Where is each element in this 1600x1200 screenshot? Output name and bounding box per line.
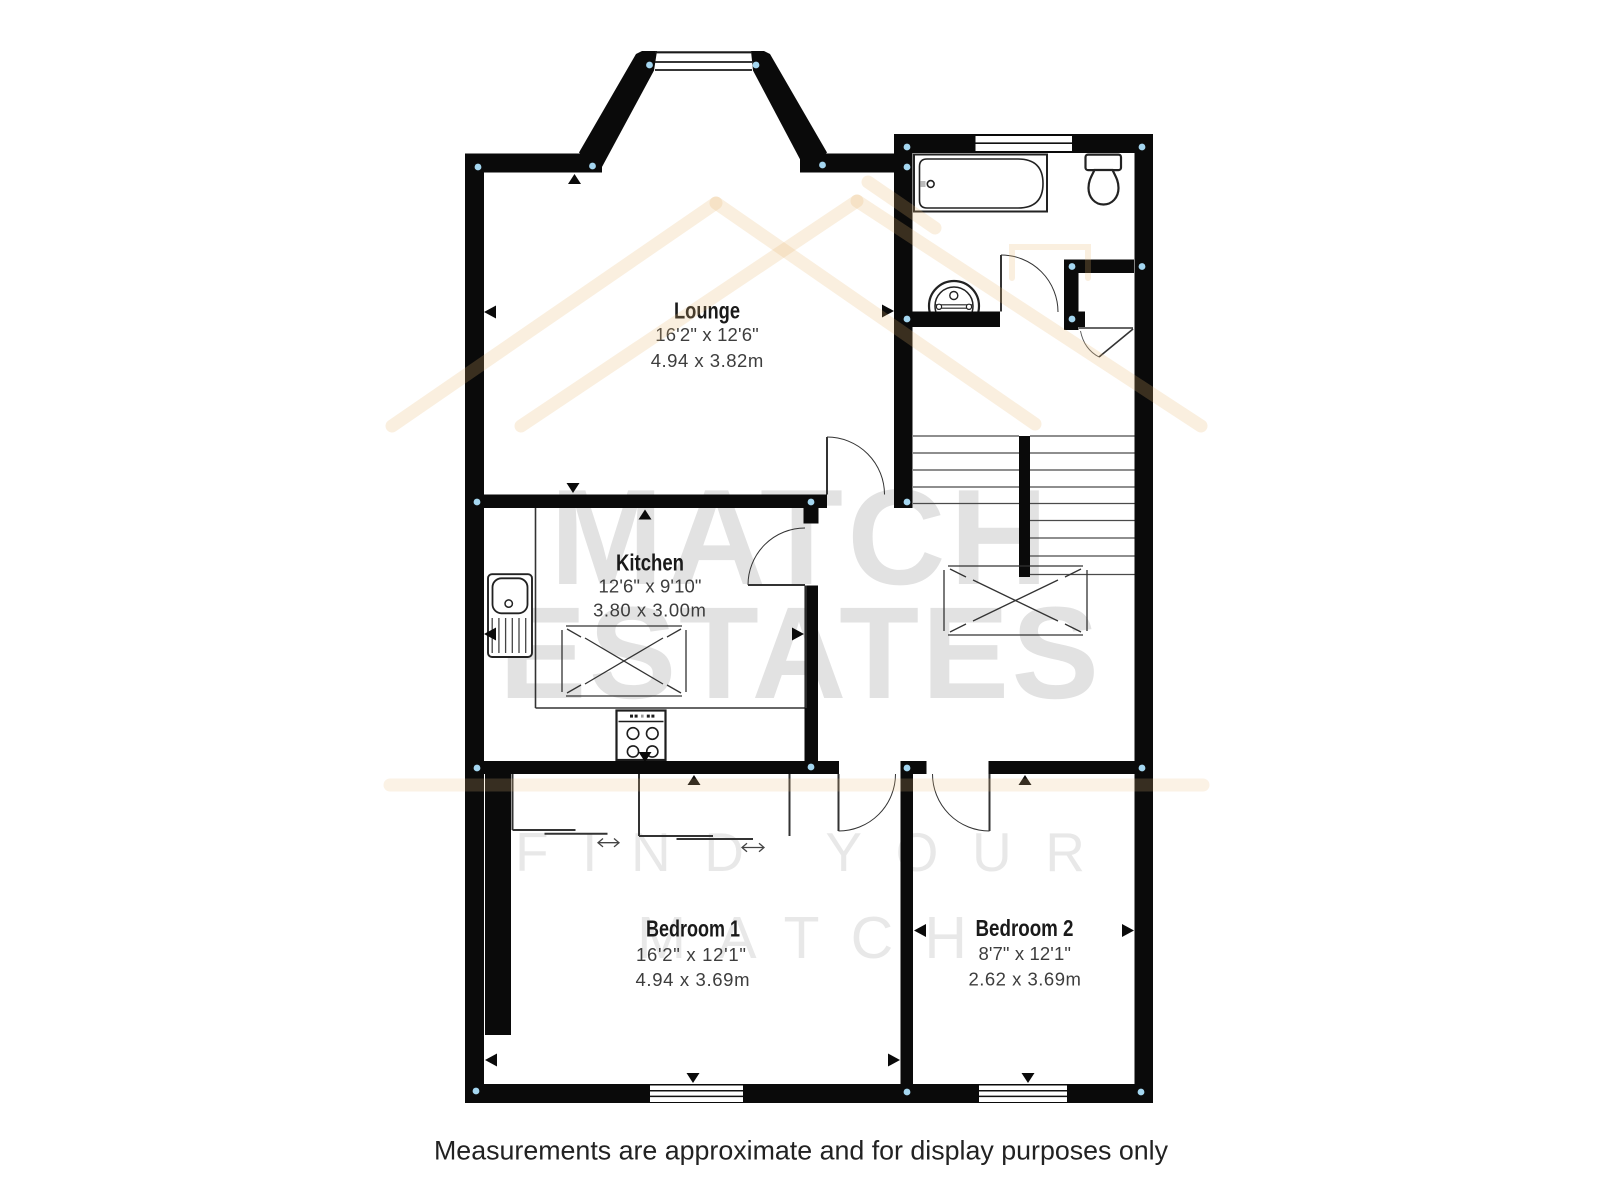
svg-text:Measurements are approximate a: Measurements are approximate and for dis… — [434, 1136, 1168, 1166]
svg-text:8'7" x 12'1": 8'7" x 12'1" — [978, 943, 1071, 964]
svg-text:16'2" x 12'1": 16'2" x 12'1" — [636, 944, 746, 965]
svg-text:Bedroom 1: Bedroom 1 — [646, 916, 740, 942]
svg-text:12'6" x 9'10": 12'6" x 9'10" — [599, 575, 702, 596]
svg-text:Bedroom 2: Bedroom 2 — [976, 915, 1074, 941]
svg-text:4.94 x 3.69m: 4.94 x 3.69m — [636, 969, 750, 990]
svg-text:ESTATES: ESTATES — [499, 579, 1099, 726]
svg-text:3.80 x 3.00m: 3.80 x 3.00m — [593, 600, 706, 621]
svg-text:2.62 x 3.69m: 2.62 x 3.69m — [968, 969, 1081, 990]
svg-text:4.94 x 3.82m: 4.94 x 3.82m — [651, 350, 764, 371]
svg-text:Kitchen: Kitchen — [616, 549, 684, 575]
